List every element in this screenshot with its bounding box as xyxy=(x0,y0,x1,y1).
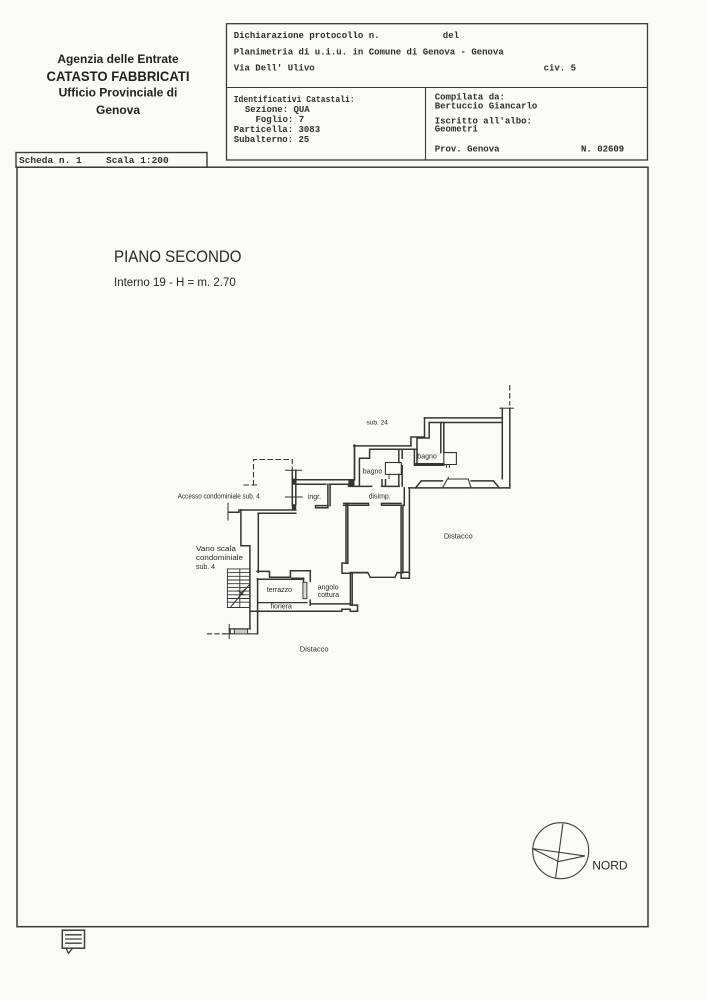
svg-text:Dichiarazione protocollo n.: Dichiarazione protocollo n. xyxy=(234,31,380,41)
svg-text:Prov. Genova: Prov. Genova xyxy=(435,144,500,154)
svg-text:cottura: cottura xyxy=(318,592,340,599)
svg-text:ingr.: ingr. xyxy=(308,494,321,501)
svg-text:Accesso condominiale sub. 4: Accesso condominiale sub. 4 xyxy=(178,493,260,500)
svg-text:angolo: angolo xyxy=(318,584,339,591)
svg-text:Scheda n. 1: Scheda n. 1 xyxy=(19,155,82,166)
svg-text:CATASTO FABBRICATI: CATASTO FABBRICATI xyxy=(47,68,190,84)
svg-text:PIANO SECONDO: PIANO SECONDO xyxy=(114,247,242,266)
svg-text:fioriera: fioriera xyxy=(271,604,293,611)
svg-text:Via Dell' Ulivo: Via Dell' Ulivo xyxy=(234,64,315,74)
svg-text:condominiale: condominiale xyxy=(196,555,243,562)
svg-text:Identificativi Catastali:: Identificativi Catastali: xyxy=(234,95,355,105)
svg-text:Scala 1:200: Scala 1:200 xyxy=(106,155,169,166)
svg-text:N. 02609: N. 02609 xyxy=(581,144,624,154)
svg-text:Geometri: Geometri xyxy=(435,125,479,135)
svg-text:Foglio: 7: Foglio: 7 xyxy=(256,115,305,125)
svg-text:disimp.: disimp. xyxy=(369,493,391,500)
svg-text:Subalterno: 25: Subalterno: 25 xyxy=(234,135,310,145)
svg-text:civ. 5: civ. 5 xyxy=(544,64,576,74)
svg-text:Sezione: QUA: Sezione: QUA xyxy=(245,105,310,115)
svg-text:NORD: NORD xyxy=(592,859,628,873)
svg-text:terrazzo: terrazzo xyxy=(267,587,292,594)
svg-text:Planimetria di u.i.u. in Comun: Planimetria di u.i.u. in Comune di Genov… xyxy=(234,47,505,57)
svg-text:Genova: Genova xyxy=(96,103,140,117)
svg-text:Ufficio Provinciale di: Ufficio Provinciale di xyxy=(59,86,178,100)
svg-text:sub. 24: sub. 24 xyxy=(367,420,389,427)
svg-text:Agenzia delle Entrate: Agenzia delle Entrate xyxy=(57,52,179,66)
svg-text:sub. 4: sub. 4 xyxy=(196,564,215,571)
svg-text:Vano scala: Vano scala xyxy=(196,546,236,553)
svg-text:bagno: bagno xyxy=(363,468,383,475)
svg-text:Distacco: Distacco xyxy=(444,532,473,541)
svg-text:del: del xyxy=(443,31,460,41)
svg-text:Particella: 3083: Particella: 3083 xyxy=(234,125,320,135)
svg-text:Interno 19 - H = m. 2.70: Interno 19 - H = m. 2.70 xyxy=(114,277,236,289)
svg-text:Distacco: Distacco xyxy=(300,645,329,654)
svg-text:Bertuccio Giancarlo: Bertuccio Giancarlo xyxy=(435,102,538,112)
svg-text:bagno: bagno xyxy=(417,454,437,461)
